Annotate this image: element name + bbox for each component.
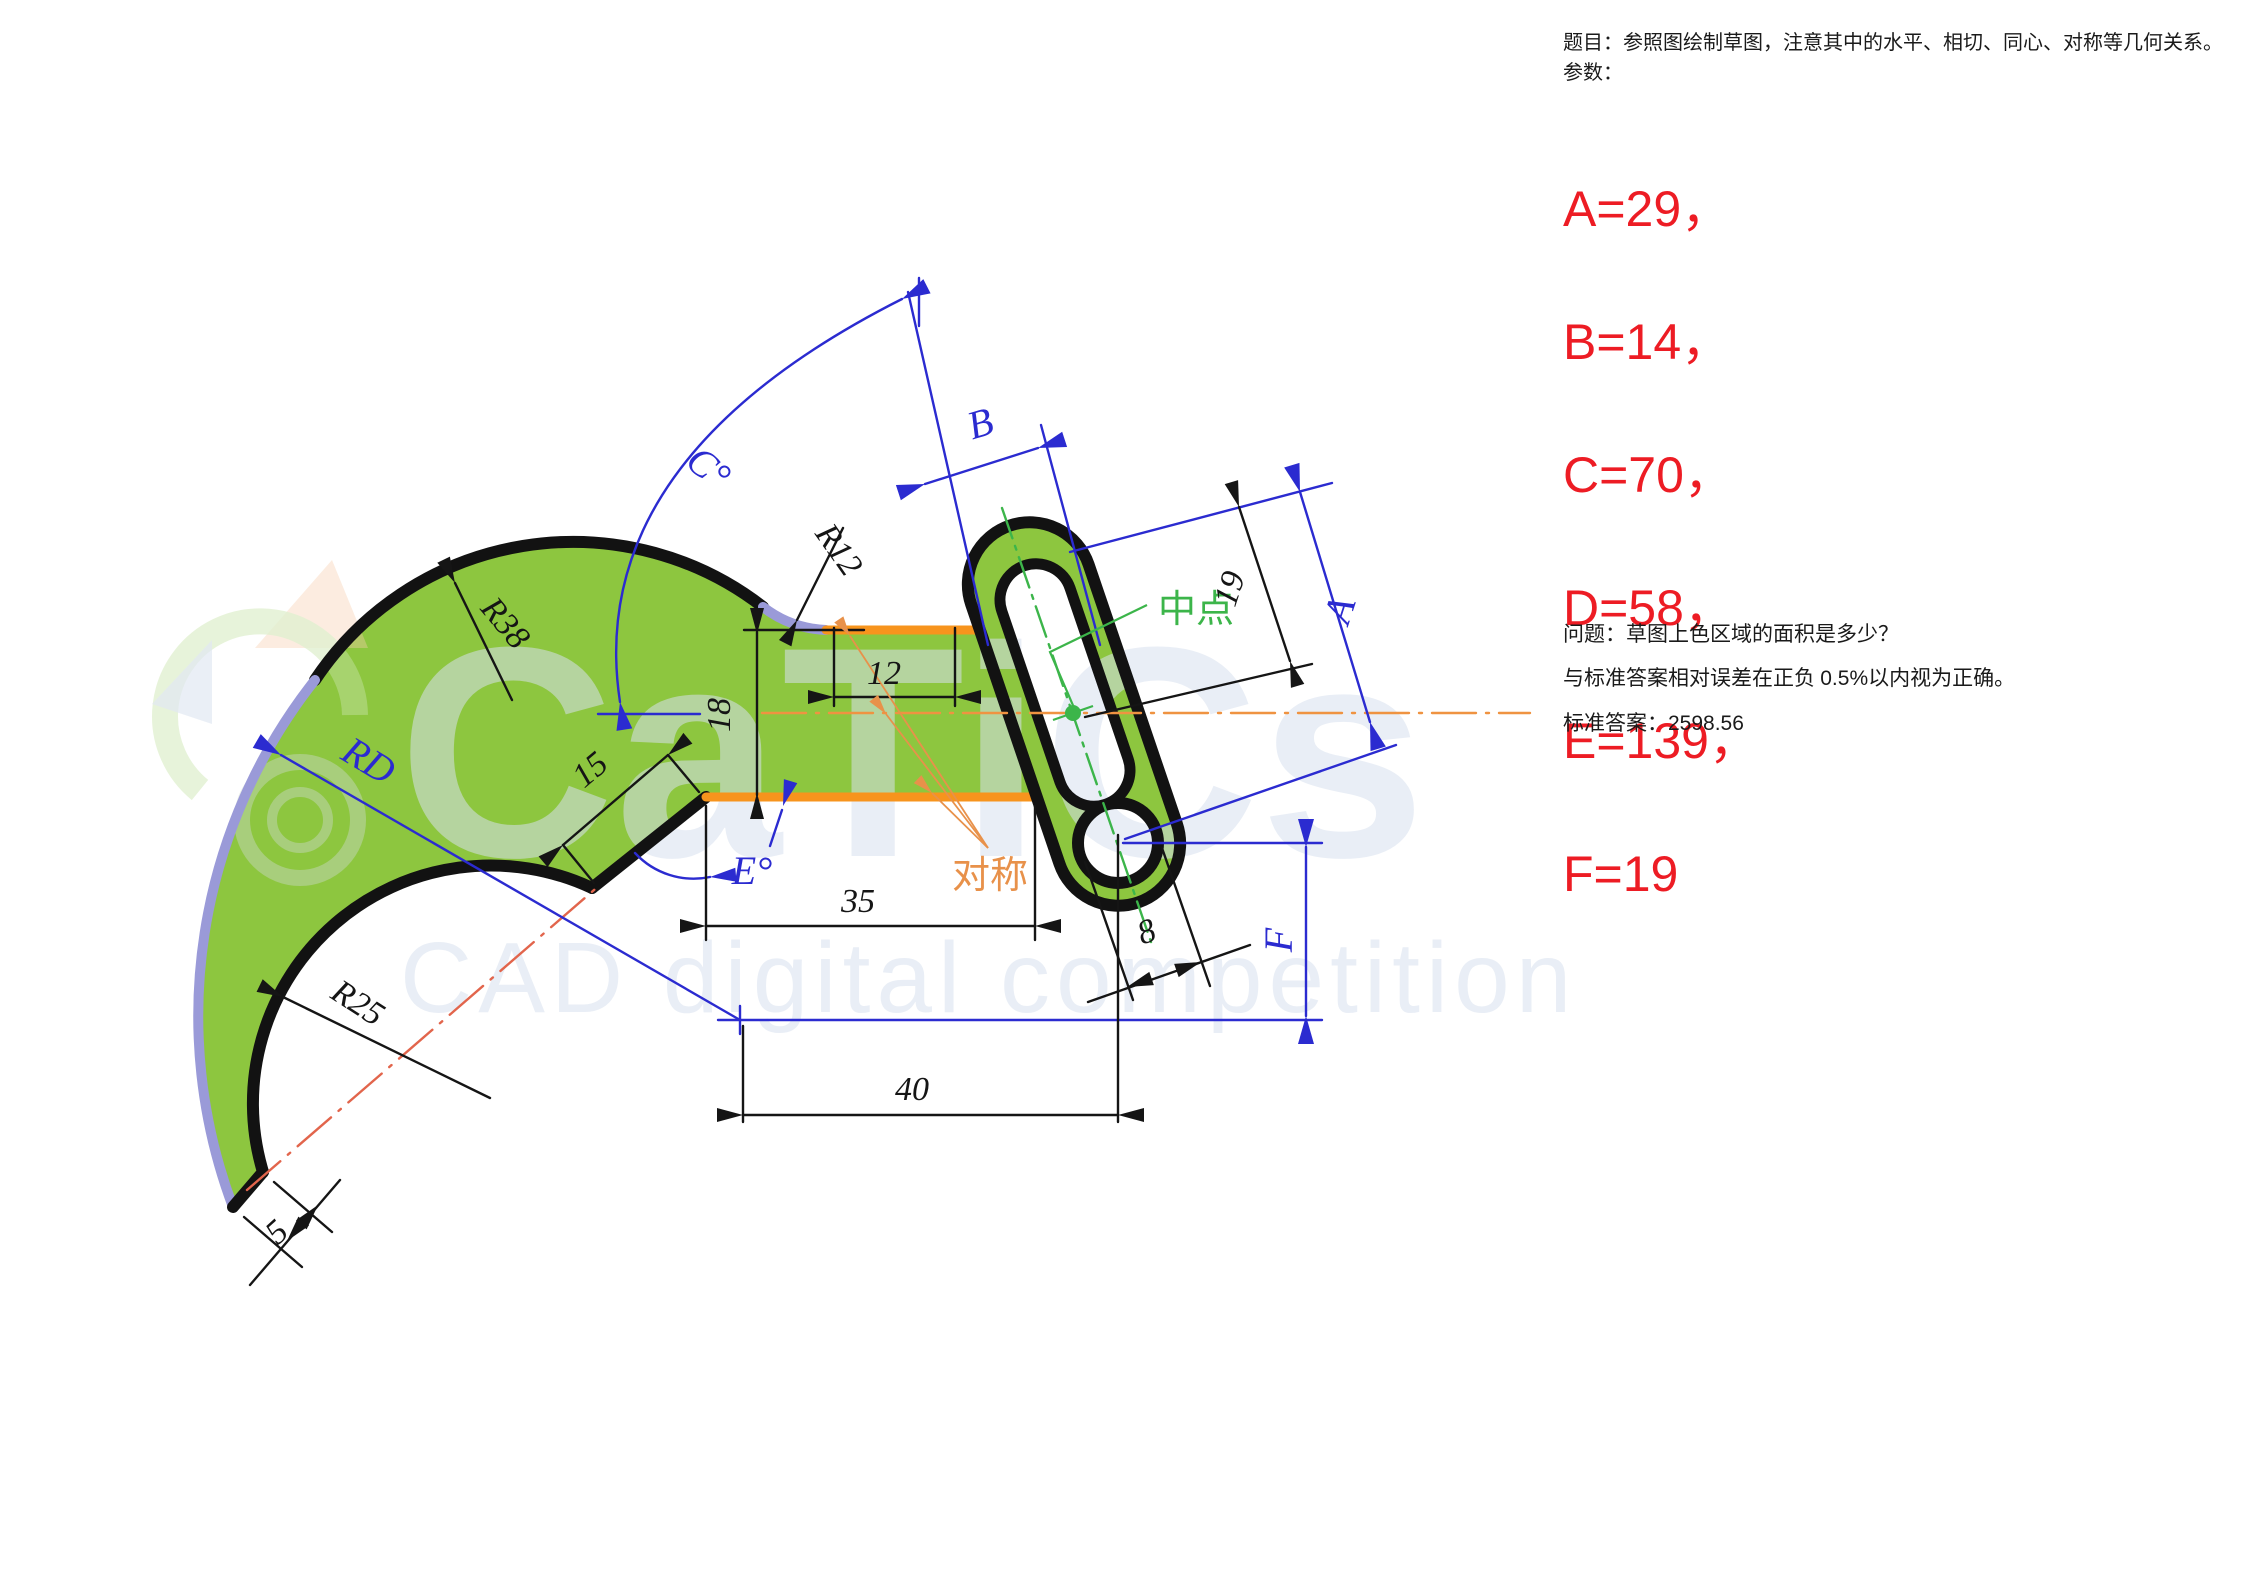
cad-question-page: CaTiCs CAD digital competition xyxy=(0,0,2245,1587)
arrow xyxy=(898,279,930,306)
param-a: A=29， xyxy=(1563,168,1759,251)
question-block: 问题：草图上色区域的面积是多少？ 与标准答案相对误差在正负 0.5%以内视为正确… xyxy=(1563,612,2243,746)
tolerance-value: 0.5% xyxy=(1820,667,1868,690)
arrow xyxy=(1036,432,1068,456)
watermark-tagline: CAD digital competition xyxy=(400,922,1577,1034)
label-r12: R12 xyxy=(807,516,869,583)
arrow xyxy=(896,476,928,500)
tolerance-suffix: 以内视为正确。 xyxy=(1868,666,2015,690)
arrow xyxy=(717,1108,743,1122)
param-f: F=19 xyxy=(1563,833,1759,916)
cad-drawing: CaTiCs CAD digital competition xyxy=(0,0,2245,1587)
label-35: 35 xyxy=(840,883,875,920)
param-c: C=70， xyxy=(1563,434,1759,517)
label-12: 12 xyxy=(867,655,901,692)
param-b: B=14， xyxy=(1563,301,1759,384)
tolerance-prefix: 与标准答案相对误差在正负 xyxy=(1563,666,1820,690)
question-title: 题目：参照图绘制草图，注意其中的水平、相切、同心、对称等几何关系。 xyxy=(1563,28,2235,58)
question-panel: 题目：参照图绘制草图，注意其中的水平、相切、同心、对称等几何关系。 参数： xyxy=(1563,28,2235,88)
label-b: B xyxy=(962,398,999,448)
label-40: 40 xyxy=(895,1071,929,1108)
b-dim-line xyxy=(925,448,1038,484)
arrow xyxy=(1225,480,1246,509)
params-label: 参数： xyxy=(1563,58,2235,88)
answer-value: 2598.56 xyxy=(1668,712,1744,735)
a-ext-top xyxy=(1070,483,1332,552)
label-c-angle: C° xyxy=(678,437,740,499)
tolerance-text: 与标准答案相对误差在正负 0.5%以内视为正确。 xyxy=(1563,656,2243,701)
arrow xyxy=(1118,1108,1144,1122)
answer-label: 标准答案： xyxy=(1563,711,1668,735)
label-r25: R25 xyxy=(324,972,391,1033)
label-18: 18 xyxy=(701,698,738,732)
params-list: A=29， B=14， C=70， D=58， E=139， F=19 xyxy=(1563,118,1759,966)
label-f: F xyxy=(1256,927,1301,953)
label-e-angle: E° xyxy=(731,848,772,893)
symmetry-label: 对称 xyxy=(952,855,1028,897)
label-5: 5 xyxy=(258,1213,295,1252)
question-text: 问题：草图上色区域的面积是多少？ xyxy=(1563,612,2243,656)
answer-line: 标准答案：2598.56 xyxy=(1563,701,2243,746)
